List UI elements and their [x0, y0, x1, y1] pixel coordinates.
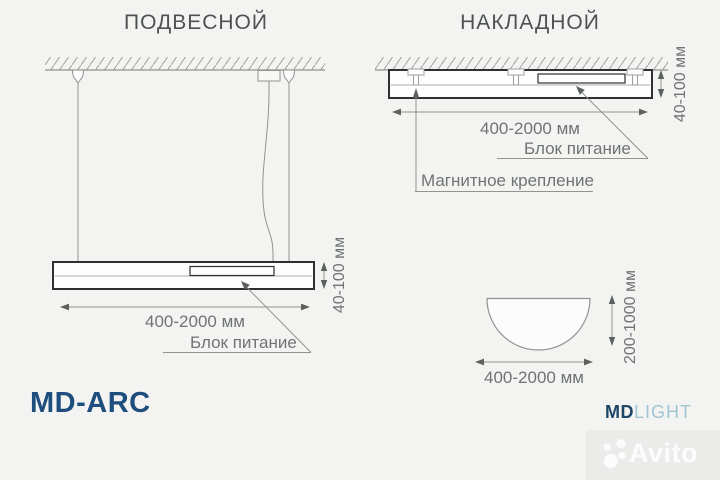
right-width-dimension: 400-2000 мм [430, 119, 630, 139]
arrow-up-icon [609, 295, 615, 304]
arrow-up-icon [658, 70, 664, 79]
right-height-dimension: 40-100 мм [672, 39, 690, 129]
magnetic-mount-icon [627, 69, 643, 75]
right-power-label: Блок питание [524, 139, 631, 159]
ceiling-hatch [45, 57, 325, 70]
arrow-right-icon [301, 304, 310, 311]
magnetic-mount-icon [408, 69, 424, 75]
power-supply-unit [190, 267, 274, 276]
junction-box [258, 71, 280, 82]
arrow-left-icon [60, 304, 69, 311]
left-panel-title: ПОДВЕСНОЙ [16, 11, 376, 35]
brand-md: MD [605, 402, 634, 422]
magnetic-mount-icon [414, 75, 419, 85]
arc-width-dimension: 400-2000 мм [434, 368, 634, 388]
arrow-left-icon [475, 359, 484, 366]
suspended-view [45, 57, 327, 353]
avito-circle [604, 454, 618, 468]
arrow-right-icon [584, 359, 593, 366]
magnetic-mount-icon [508, 69, 524, 75]
canopy-icon [284, 70, 295, 83]
left-width-dimension: 400-2000 мм [95, 312, 295, 332]
power-supply-unit [538, 74, 625, 83]
right-panel-title: НАКЛАДНОЙ [350, 11, 710, 35]
avito-circle [604, 444, 611, 451]
brand-logo: MDLIGHT [605, 402, 692, 423]
canopy-icon [73, 70, 84, 83]
arrow-right-icon [639, 109, 648, 116]
arrow-left-icon [392, 109, 401, 116]
arrow-down-icon [658, 89, 664, 98]
arc-diffuser-shape [487, 299, 590, 351]
model-name: MD-ARC [30, 387, 151, 420]
power-cable [263, 82, 273, 263]
left-power-label: Блок питание [190, 333, 297, 353]
magnetic-mount-icon [514, 75, 519, 85]
brand-light: LIGHT [634, 402, 692, 422]
avito-watermark: Avito [629, 438, 698, 469]
arrow-up-icon [321, 262, 327, 271]
right-magnet-label: Магнитное крепление [421, 171, 594, 191]
arrow-down-icon [609, 337, 615, 346]
arc-profile-view [475, 295, 615, 365]
arc-height-dimension: 200-1000 мм [622, 262, 640, 372]
magnetic-mount-icon [633, 75, 638, 85]
avito-circle [617, 439, 626, 448]
left-height-dimension: 40-100 мм [331, 230, 349, 320]
ceiling-hatch [375, 57, 668, 70]
avito-circle [619, 452, 626, 459]
arrow-down-icon [321, 280, 327, 289]
